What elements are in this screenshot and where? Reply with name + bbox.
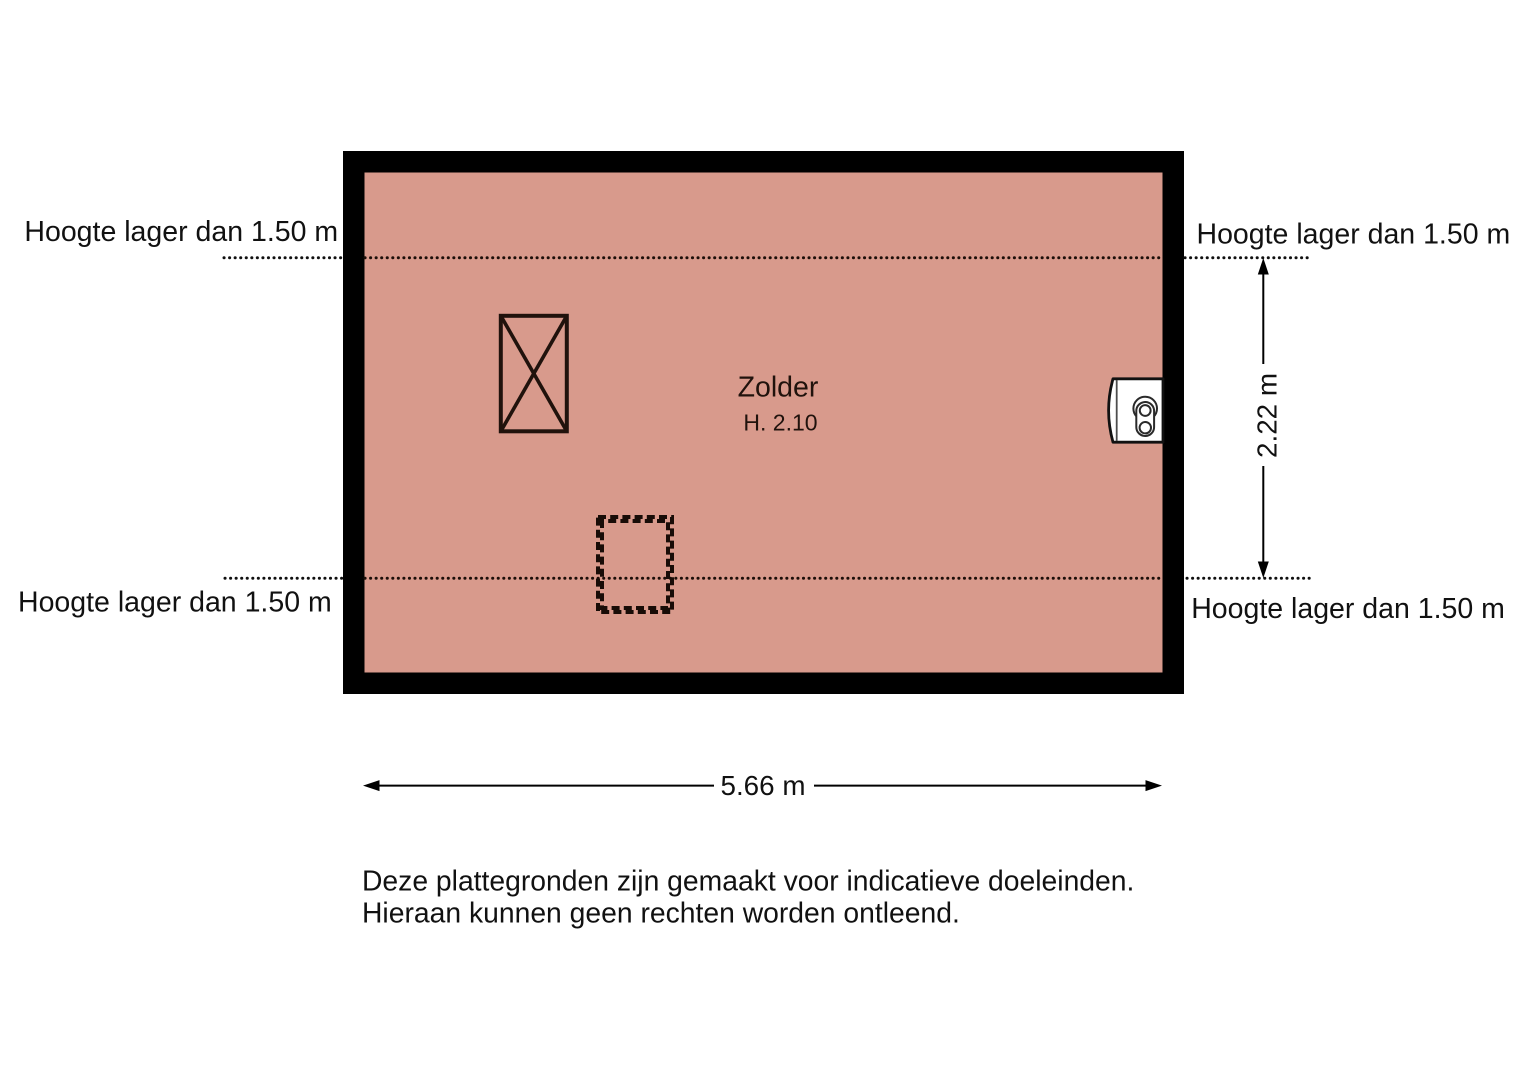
svg-text:5.66 m: 5.66 m [721,770,806,801]
svg-text:Hoogte lager dan 1.50 m: Hoogte lager dan 1.50 m [24,216,338,248]
svg-text:Hieraan kunnen geen rechten wo: Hieraan kunnen geen rechten worden ontle… [362,896,960,928]
svg-text:Hoogte lager dan 1.50 m: Hoogte lager dan 1.50 m [18,587,332,619]
svg-text:Hoogte lager dan 1.50 m: Hoogte lager dan 1.50 m [1191,593,1505,625]
svg-text:Zolder: Zolder [738,372,819,404]
svg-text:2.22 m: 2.22 m [1252,373,1283,458]
svg-text:Deze plattegronden zijn gemaak: Deze plattegronden zijn gemaakt voor ind… [362,865,1134,897]
svg-text:Hoogte lager dan 1.50 m: Hoogte lager dan 1.50 m [1197,218,1511,250]
svg-text:H. 2.10: H. 2.10 [743,410,817,436]
